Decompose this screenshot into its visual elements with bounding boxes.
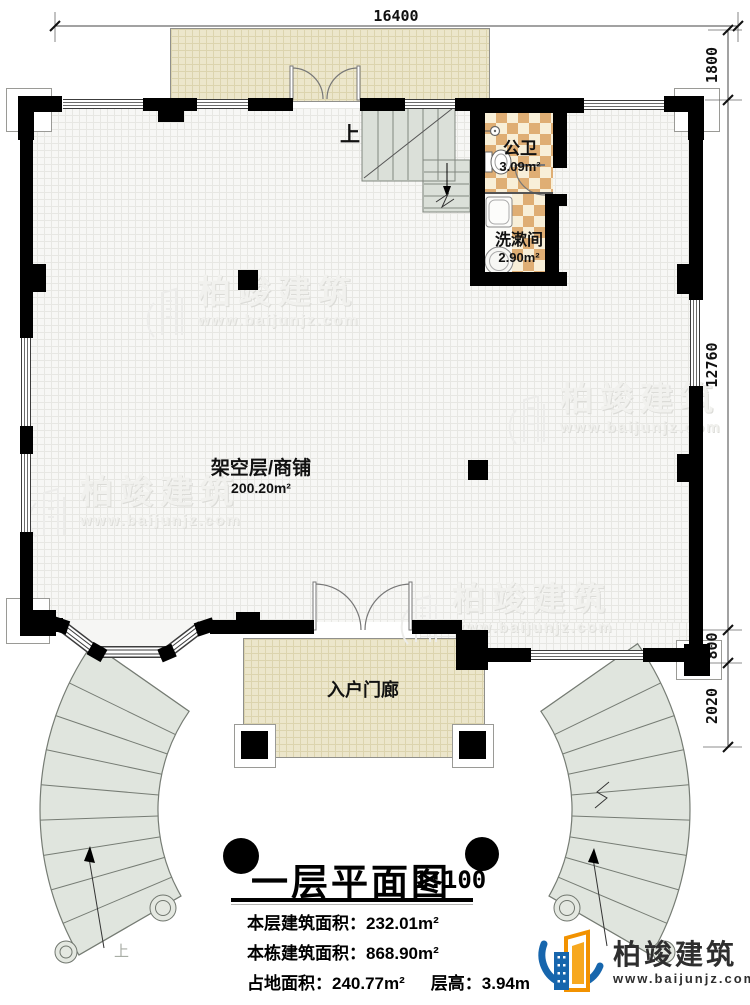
logo-mark-icon: [532, 926, 608, 1000]
room-name: 洗漱间: [474, 226, 564, 250]
wall-column-bump: [677, 454, 691, 482]
dimension-top: 16400: [373, 7, 418, 25]
stat-site-area: 占地面积：240.77m²: [247, 969, 405, 994]
room-divider-line: [485, 192, 553, 194]
window-strip: [531, 650, 643, 660]
stat-building-area: 本栋建筑面积：868.90m²: [247, 939, 439, 964]
room-label-toilet: 公卫 3.09m²: [478, 134, 562, 174]
stair-up-label: 上: [114, 940, 129, 961]
floor-plan-canvas: 柏竣建筑 www.baijunjz.com 柏竣建筑 www.baijunjz.…: [0, 0, 750, 1005]
stat-site-row: 占地面积：240.77m² 层高：3.94m: [247, 969, 530, 994]
wall-segment: [483, 648, 531, 662]
curved-stair-left: [40, 644, 189, 963]
curved-stair-right: [541, 644, 690, 963]
stat-floor-height: 层高：3.94m: [431, 969, 530, 994]
dimension-right-2020: 2020: [703, 688, 721, 724]
dimension-right-1800: 1800: [703, 47, 721, 83]
stat-floor-area: 本层建筑面积：232.01m²: [247, 909, 439, 934]
wall-segment: [684, 644, 710, 676]
interior-column: [238, 270, 258, 290]
room-area: 200.20m²: [196, 480, 326, 496]
terrace-floor: [170, 28, 490, 102]
room-name: 公卫: [478, 134, 562, 159]
wall-segment: [360, 98, 405, 111]
room-label-porch: 入户门廊: [283, 676, 443, 702]
wall-segment: [545, 194, 567, 206]
wall-segment: [20, 108, 33, 338]
window-strip: [197, 99, 248, 109]
title-underline-thin: [231, 904, 473, 905]
room-label-washroom: 洗漱间 2.90m²: [474, 226, 564, 265]
interior-column: [468, 460, 488, 480]
room-name: 入户门廊: [283, 676, 443, 702]
logo-brand-text: 柏竣建筑: [613, 940, 750, 971]
wall-column-bump: [20, 264, 46, 292]
window-strip: [690, 300, 700, 386]
bay-window: [50, 620, 214, 656]
title-underline: [231, 898, 473, 902]
room-area: 2.90m²: [474, 250, 564, 265]
wall-column-bump: [236, 612, 260, 622]
porch-column: [459, 731, 486, 759]
wall-segment: [33, 618, 63, 632]
wall-column-bump: [677, 264, 691, 294]
window-strip: [63, 99, 143, 109]
main-floor: [30, 108, 692, 622]
stair-up-label: 上: [340, 118, 360, 147]
drawing-scale: 1:100: [414, 866, 486, 894]
wall-segment: [210, 620, 314, 634]
room-label-shop: 架空层/商铺 200.20m²: [196, 453, 326, 496]
window-strip: [21, 454, 31, 532]
wall-segment: [20, 426, 33, 454]
room-area: 3.09m²: [478, 159, 562, 174]
wall-segment: [479, 98, 584, 113]
window-strip: [405, 99, 455, 109]
wall-segment: [689, 108, 703, 300]
wall-segment: [248, 98, 293, 111]
window-strip: [584, 100, 664, 110]
room-name: 架空层/商铺: [196, 453, 326, 480]
interior-stair-floor-lower: [423, 160, 470, 212]
wall-column-bump: [158, 108, 184, 122]
wall-segment: [470, 272, 567, 286]
wall-segment: [412, 620, 462, 634]
window-strip: [21, 338, 31, 426]
logo-url-text: www.baijunjz.com: [613, 971, 750, 986]
brand-logo: 柏竣建筑 www.baijunjz.com: [532, 926, 750, 1000]
dimension-right-12760: 12760: [703, 342, 721, 387]
wall-segment: [689, 386, 703, 664]
porch-column: [241, 731, 268, 759]
